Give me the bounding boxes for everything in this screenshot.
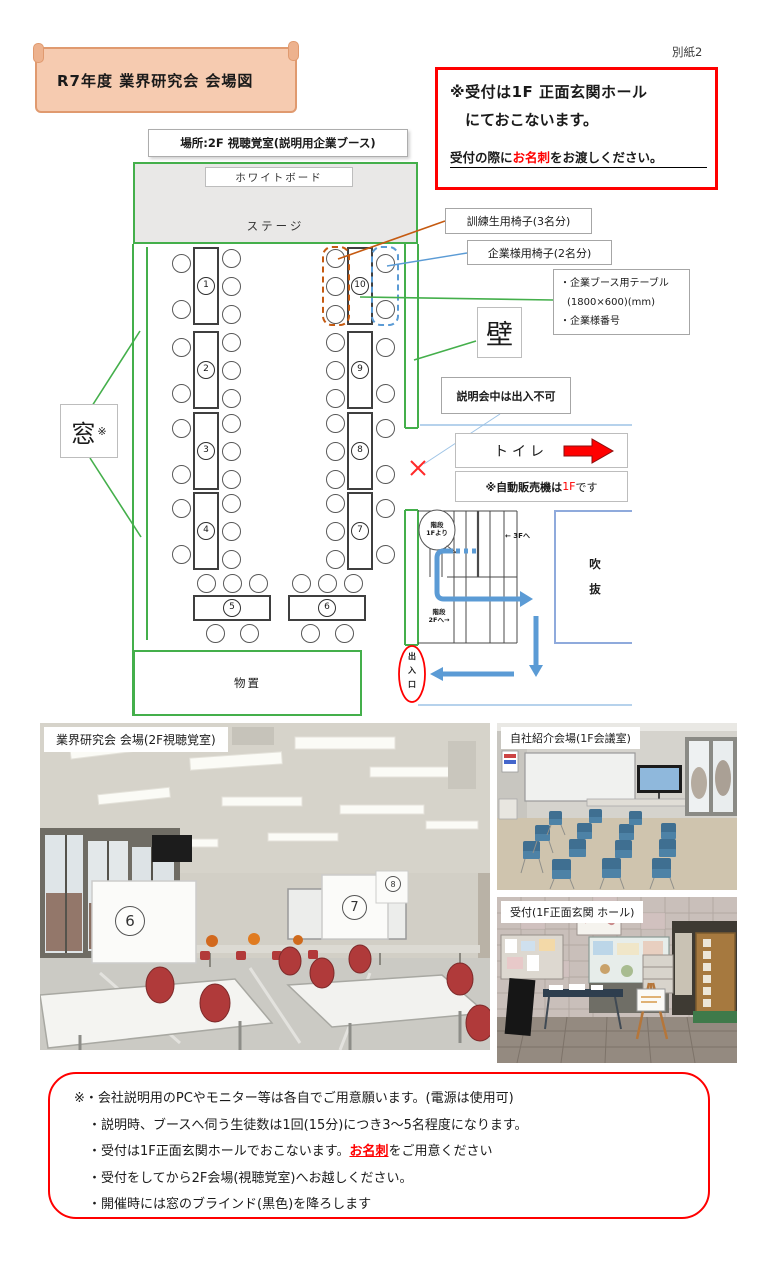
notice-line-2: にておこないます。 xyxy=(450,109,707,130)
chair xyxy=(222,414,241,433)
booth-table-1: 1 xyxy=(193,247,219,325)
note-line-1: ※・会社説明用のPCやモニター等は各自でご用意願います。(電源は使用可) xyxy=(74,1086,690,1113)
chair xyxy=(223,574,242,593)
vending-floor-emphasis: 1F xyxy=(562,480,575,493)
chair xyxy=(172,465,191,484)
chair xyxy=(326,522,345,541)
page-title: R7年度 業界研究会 会場図 xyxy=(37,70,253,91)
chair xyxy=(222,249,241,268)
chair xyxy=(222,277,241,296)
chair xyxy=(376,465,395,484)
chair xyxy=(172,499,191,518)
chair xyxy=(335,624,354,643)
chair xyxy=(172,419,191,438)
table-number: 6 xyxy=(318,599,336,617)
table-number: 7 xyxy=(351,522,369,540)
atrium-label: 吹抜 xyxy=(585,556,605,597)
note-line-3: ・受付は1F正面玄関ホールでおこないます。お名刺をご用意ください xyxy=(74,1139,690,1166)
chair xyxy=(172,384,191,403)
wall-label: 壁 xyxy=(477,307,522,358)
chair xyxy=(326,494,345,513)
booth-info-line: ・企業様番号 xyxy=(560,312,620,331)
chair xyxy=(376,545,395,564)
chair xyxy=(376,499,395,518)
table-number: 3 xyxy=(197,442,215,460)
booth-table-10: 10 xyxy=(347,247,373,325)
table-number: 1 xyxy=(197,277,215,295)
booth-table-8: 8 xyxy=(347,412,373,490)
stairs-from-1f-label: 階段1Fより xyxy=(420,521,454,537)
photo-av-room-scene xyxy=(40,723,490,1050)
photo-reception-caption: 受付(1F正面玄関 ホール) xyxy=(501,901,643,923)
toilet-box: トイレ xyxy=(455,433,628,468)
photo-reception: 受付(1F正面玄関 ホール) xyxy=(497,897,737,1063)
chair xyxy=(326,361,345,380)
note-line-5: ・開催時には窓のブラインド(黒色)を降ろします xyxy=(74,1192,690,1219)
photo-av-room: 業界研究会 会場(2F視聴覚室) 6 7 8 xyxy=(40,723,490,1050)
booth-sign-7: 7 xyxy=(342,895,367,920)
booth-info-line: ・企業ブース用テーブル xyxy=(560,274,669,293)
reception-notice-box: ※受付は1F 正面玄関ホール にておこないます。 受付の際にお名刺をお渡しくださ… xyxy=(435,67,718,190)
booth-info-line: (1800×600)(mm) xyxy=(560,293,655,312)
business-card-note-emphasis: お名刺 xyxy=(349,1144,388,1159)
chair xyxy=(326,389,345,408)
table-number: 9 xyxy=(351,361,369,379)
window-label: 窓 xyxy=(71,414,95,449)
chair xyxy=(222,305,241,324)
company-chairs-outline xyxy=(371,246,399,326)
chair xyxy=(197,574,216,593)
notice-line-1: ※受付は1F 正面玄関ホール xyxy=(450,81,707,102)
notes-box: ※・会社説明用のPCやモニター等は各自でご用意願います。(電源は使用可) ・説明… xyxy=(48,1072,710,1219)
toilet-arrow-icon xyxy=(562,437,616,465)
chair xyxy=(172,338,191,357)
window-label-box: 窓 ※ xyxy=(60,404,118,458)
booth-table-2: 2 xyxy=(193,331,219,409)
chair xyxy=(326,333,345,352)
note-line-4: ・受付をしてから2F会場(視聴覚室)へお越しください。 xyxy=(74,1166,690,1193)
chair xyxy=(326,442,345,461)
chair xyxy=(222,333,241,352)
booth-sign-8: 8 xyxy=(385,876,401,892)
vending-note: ※自動販売機は1Fです xyxy=(455,471,628,502)
chair xyxy=(172,545,191,564)
table-number: 5 xyxy=(223,599,241,617)
booth-table-4: 4 xyxy=(193,492,219,570)
chair xyxy=(222,442,241,461)
chair xyxy=(376,384,395,403)
booth-table-6: 6 xyxy=(288,595,366,621)
company-chairs-label: 企業様用椅子(2名分) xyxy=(467,240,612,265)
chair xyxy=(249,574,268,593)
chair xyxy=(222,522,241,541)
stairs-to-3f-label: ← 3Fへ xyxy=(505,531,530,541)
booth-table-9: 9 xyxy=(347,331,373,409)
place-label: 場所:2F 視聴覚室(説明用企業ブース) xyxy=(148,129,408,157)
chair xyxy=(292,574,311,593)
chair xyxy=(222,494,241,513)
storage-label: 物置 xyxy=(133,650,362,716)
business-card-emphasis: お名刺 xyxy=(513,150,551,165)
entrance-label: 出入口 xyxy=(405,651,419,690)
chair xyxy=(344,574,363,593)
flyer-page: 別紙2 R7年度 業界研究会 会場図 ※受付は1F 正面玄関ホール にておこない… xyxy=(0,0,760,1262)
table-number: 8 xyxy=(351,442,369,460)
booth-table-5: 5 xyxy=(193,595,271,621)
chair xyxy=(206,624,225,643)
chair xyxy=(172,254,191,273)
booth-info-box: ・企業ブース用テーブル (1800×600)(mm) ・企業様番号 xyxy=(553,269,690,335)
attachment-label: 別紙2 xyxy=(672,44,702,60)
scroll-curl-icon xyxy=(33,43,44,63)
chair xyxy=(222,550,241,569)
stairs-to-2f-label: 階段2Fへ→ xyxy=(421,608,457,624)
chair xyxy=(222,361,241,380)
chair xyxy=(376,338,395,357)
chair xyxy=(318,574,337,593)
trainee-chairs-outline xyxy=(322,246,350,326)
chair xyxy=(376,419,395,438)
note-line-2: ・説明時、ブースへ伺う生徒数は1回(15分)につき3〜5名程度になります。 xyxy=(74,1113,690,1140)
notice-line-3: 受付の際にお名刺をお渡しください。 xyxy=(450,147,707,168)
chair xyxy=(326,550,345,569)
booth-table-3: 3 xyxy=(193,412,219,490)
chair xyxy=(301,624,320,643)
no-entry-label: 説明会中は出入不可 xyxy=(441,377,571,414)
chair xyxy=(326,470,345,489)
chair xyxy=(222,470,241,489)
chair xyxy=(172,300,191,319)
booth-table-7: 7 xyxy=(347,492,373,570)
chair xyxy=(222,389,241,408)
table-number: 4 xyxy=(197,522,215,540)
scroll-curl-icon xyxy=(288,41,299,61)
chair xyxy=(240,624,259,643)
table-number: 10 xyxy=(351,277,369,295)
chair xyxy=(326,414,345,433)
booth-sign-6: 6 xyxy=(115,906,145,936)
window-mark: ※ xyxy=(97,425,106,438)
trainee-chairs-label: 訓練生用椅子(3名分) xyxy=(445,208,592,234)
title-banner: R7年度 業界研究会 会場図 xyxy=(35,47,297,113)
table-number: 2 xyxy=(197,361,215,379)
toilet-label: トイレ xyxy=(494,441,548,461)
